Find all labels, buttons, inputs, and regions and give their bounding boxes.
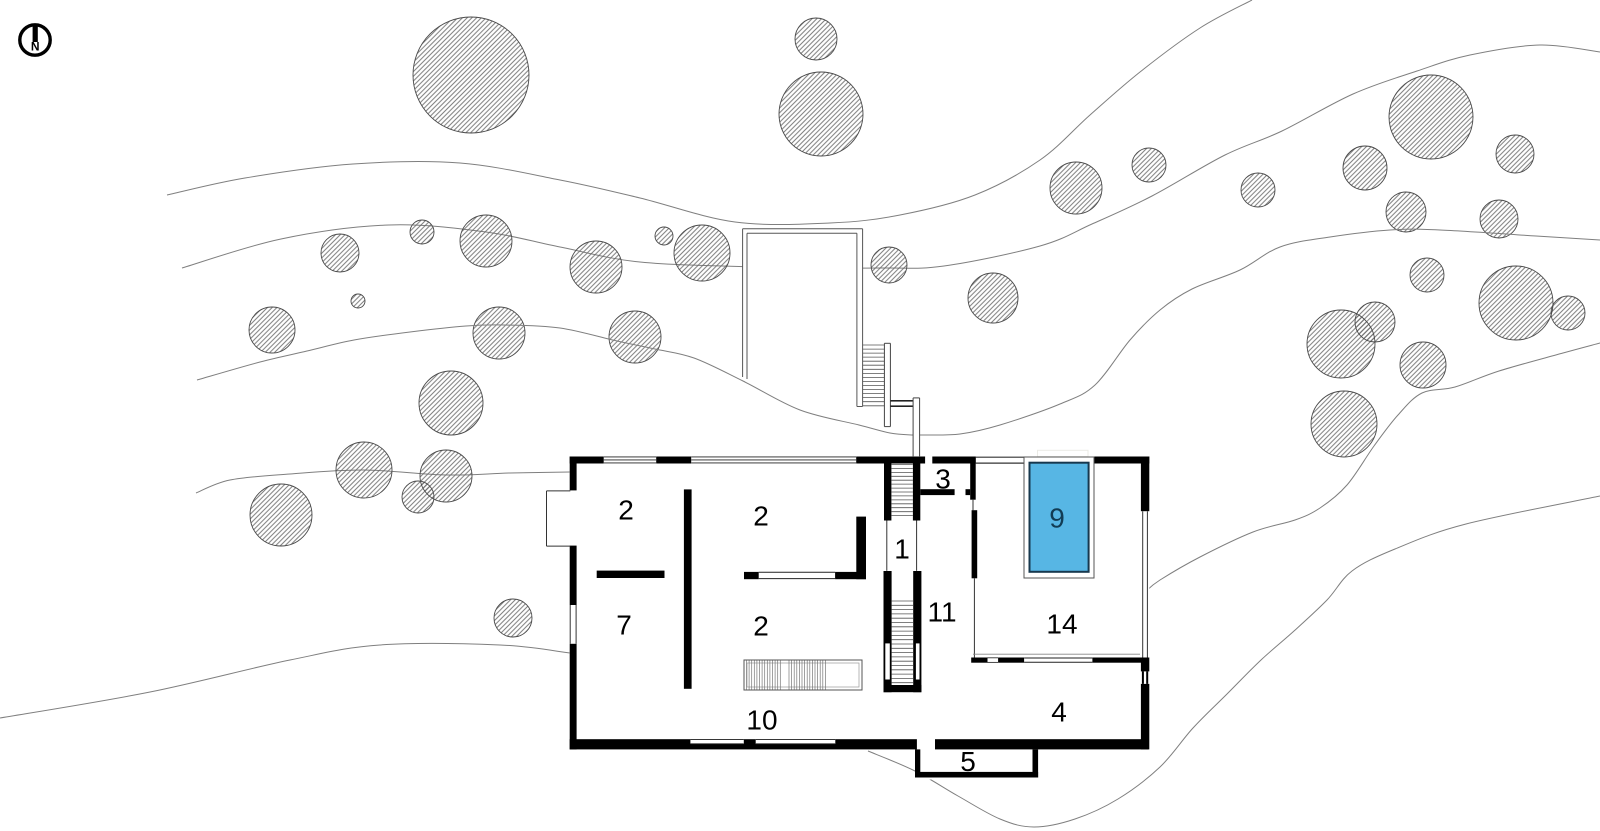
svg-text:3: 3 (935, 464, 951, 495)
svg-text:4: 4 (1051, 697, 1067, 728)
svg-text:2: 2 (753, 611, 769, 642)
svg-text:2: 2 (618, 495, 634, 526)
svg-text:5: 5 (960, 746, 976, 777)
svg-text:10: 10 (746, 705, 777, 736)
svg-text:14: 14 (1046, 609, 1077, 640)
svg-text:2: 2 (753, 501, 769, 532)
svg-text:9: 9 (1049, 503, 1065, 534)
svg-text:11: 11 (927, 597, 956, 628)
svg-text:7: 7 (616, 610, 632, 641)
svg-text:N: N (31, 40, 40, 54)
svg-text:1: 1 (894, 534, 910, 565)
